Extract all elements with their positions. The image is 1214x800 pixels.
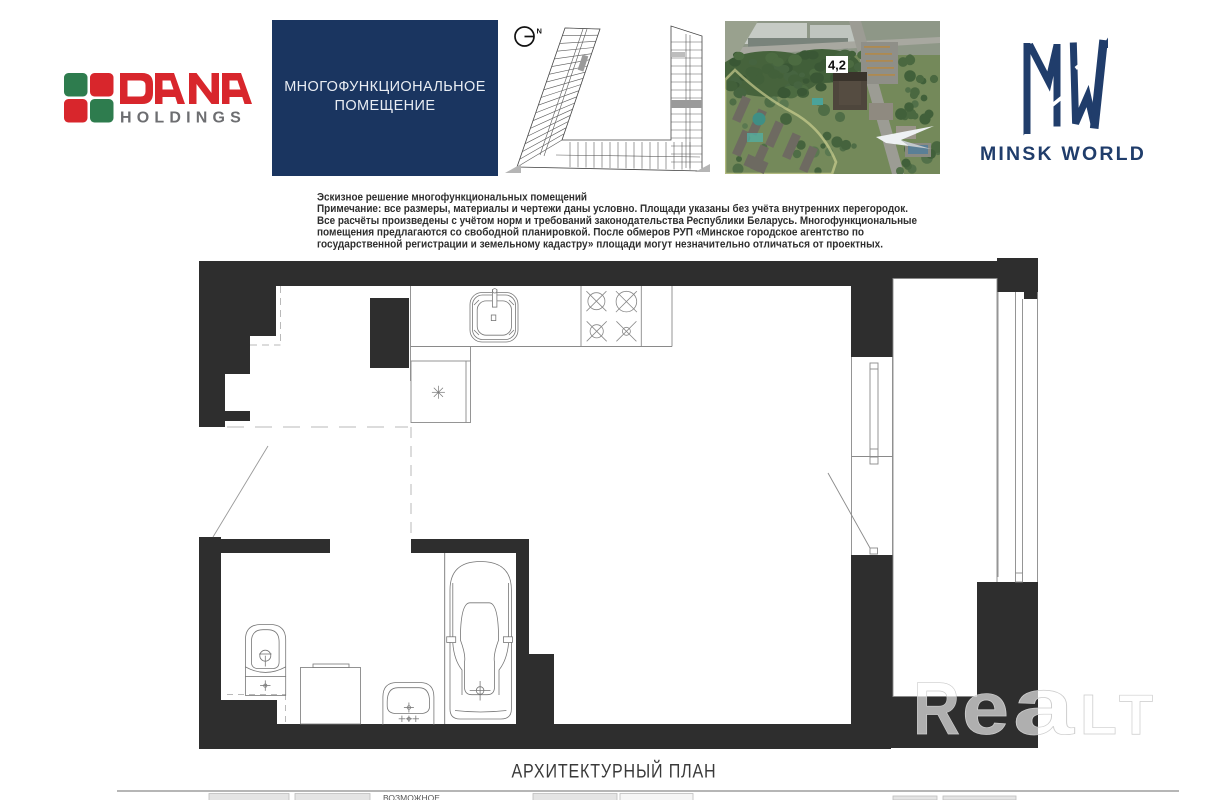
svg-text:N: N <box>537 27 542 36</box>
svg-text:R: R <box>913 667 960 750</box>
svg-text:МНОГОФУНКЦИОНАЛЬНОЕ: МНОГОФУНКЦИОНАЛЬНОЕ <box>284 79 486 95</box>
svg-text:государственной регистрации и: государственной регистрации и земельному… <box>317 238 883 250</box>
svg-text:MINSK WORLD: MINSK WORLD <box>980 143 1146 165</box>
svg-text:a: a <box>1013 661 1076 752</box>
svg-text:Примечание: все размеры, матер: Примечание: все размеры, материалы и чер… <box>317 203 908 215</box>
svg-text:T: T <box>1119 683 1153 747</box>
svg-text:HOLDINGS: HOLDINGS <box>120 110 246 127</box>
svg-text:АРХИТЕКТУРНЫЙ ПЛАН: АРХИТЕКТУРНЫЙ ПЛАН <box>512 761 717 783</box>
svg-text:L: L <box>1080 683 1117 747</box>
svg-text:ПОМЕЩЕНИЕ: ПОМЕЩЕНИЕ <box>335 98 436 114</box>
svg-text:Все расчёты произведены с учёт: Все расчёты произведены с учётом норм и … <box>317 215 917 227</box>
svg-text:Эскизное решение многофункцион: Эскизное решение многофункциональных пом… <box>317 192 587 204</box>
svg-text:помещения предлагаются со своб: помещения предлагаются со свободной план… <box>317 227 864 239</box>
svg-text:e: e <box>962 667 1009 750</box>
svg-text:4,2: 4,2 <box>828 58 846 73</box>
svg-text:ВОЗМОЖНОЕ: ВОЗМОЖНОЕ <box>383 793 440 800</box>
